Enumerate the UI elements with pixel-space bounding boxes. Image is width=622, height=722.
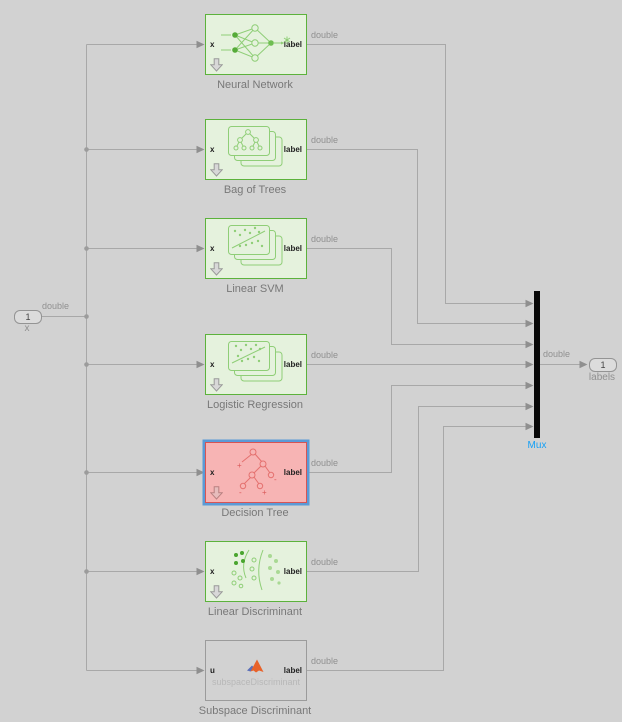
signal-type-label: double [311, 458, 338, 468]
mux-block[interactable] [534, 291, 540, 438]
block-input-pin: u [210, 666, 215, 675]
block-input-pin: x [210, 145, 214, 154]
signal-type-label: double [311, 350, 338, 360]
block-name: Linear Discriminant [175, 606, 335, 618]
block-decision-tree[interactable]: x label +- -+ Decision Tree double [205, 442, 307, 503]
block-linear-discriminant[interactable]: x label Linear Discriminant double [205, 541, 307, 602]
block-output-pin: label [284, 468, 302, 477]
signal-type-label: double [311, 30, 338, 40]
mux-block-name: Mux [517, 440, 557, 451]
block-bag-of-trees[interactable]: x label Bag of Trees double [205, 119, 307, 180]
block-name: Neural Network [175, 79, 335, 91]
variant-arrow-icon[interactable] [210, 163, 223, 177]
output-port-name: labels [577, 372, 622, 383]
block-input-pin: x [210, 567, 214, 576]
linear-discriminant-icon [227, 548, 285, 592]
block-input-pin: x [210, 468, 214, 477]
logistic-regression-icon [228, 341, 284, 385]
signal-type-label: double [42, 301, 69, 311]
svg-text:-: - [274, 475, 277, 484]
input-port-name: x [14, 323, 40, 334]
block-name: Bag of Trees [175, 184, 335, 196]
svg-text:-: - [239, 488, 242, 495]
block-input-pin: x [210, 244, 214, 253]
svg-text:+: + [262, 488, 267, 495]
signal-type-label: double [311, 234, 338, 244]
svg-text:+: + [237, 461, 242, 470]
matlab-logo-icon [246, 658, 266, 676]
block-output-pin: label [284, 360, 302, 369]
block-name: Decision Tree [175, 507, 335, 519]
block-name: Subspace Discriminant [175, 705, 335, 717]
block-input-pin: x [210, 40, 214, 49]
input-port[interactable]: 1 [14, 310, 42, 324]
block-output-pin: label [284, 567, 302, 576]
decision-tree-icon: +- -+ [230, 447, 282, 495]
block-logistic-regression[interactable]: x label Logistic Regression double [205, 334, 307, 395]
block-output-pin: label [284, 244, 302, 253]
neural-network-icon [219, 23, 293, 63]
signal-type-label: double [543, 349, 570, 359]
block-neural-network[interactable]: x label Neural Network double [205, 14, 307, 75]
output-port[interactable]: 1 [589, 358, 617, 372]
variant-arrow-icon[interactable] [210, 58, 223, 72]
variant-arrow-icon[interactable] [210, 585, 223, 599]
variant-arrow-icon[interactable] [210, 262, 223, 276]
linear-svm-icon [228, 225, 284, 269]
block-name: Logistic Regression [175, 399, 335, 411]
matlab-function-name: subspaceDiscriminant [206, 677, 306, 687]
block-output-pin: label [284, 666, 302, 675]
simulink-canvas: 1 x double x label Neural Network [0, 0, 622, 722]
variant-arrow-icon[interactable] [210, 378, 223, 392]
block-output-pin: label [284, 145, 302, 154]
block-subspace-discriminant[interactable]: u label subspaceDiscriminant Subspace Di… [205, 640, 307, 701]
block-name: Linear SVM [175, 283, 335, 295]
signal-type-label: double [311, 135, 338, 145]
signal-type-label: double [311, 557, 338, 567]
block-input-pin: x [210, 360, 214, 369]
variant-arrow-icon[interactable] [210, 486, 223, 500]
block-linear-svm[interactable]: x label Linear SVM double [205, 218, 307, 279]
bag-of-trees-icon [228, 126, 284, 170]
signal-type-label: double [311, 656, 338, 666]
